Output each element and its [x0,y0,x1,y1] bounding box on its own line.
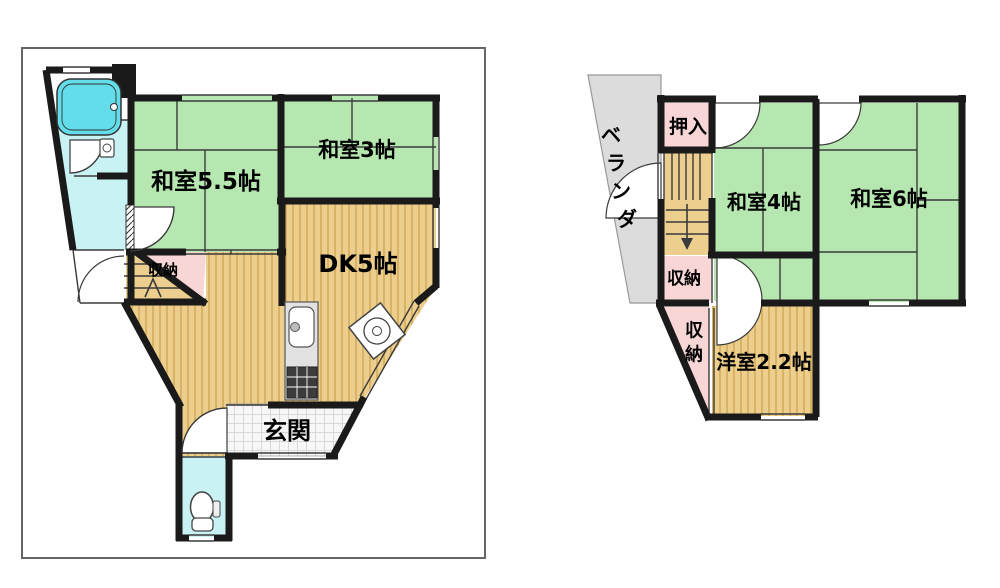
label-veranda-char-3: ン [611,179,631,203]
label-veranda-char-4: ダ [617,207,637,231]
label-genkan: 玄関 [263,417,311,445]
washbasin-icon [100,139,114,157]
label-oshiire: 押入 [669,115,707,138]
label-washitsu-4: 和室4帖 [727,190,801,214]
label-dk: DK5帖 [318,250,397,278]
second-floor-plan: 押入 和室4帖 和室6帖 収納 洋室2.2帖 収 納 ベ ラ ン ダ [588,75,966,420]
label-storage-lower-char-1: 収 [685,321,704,342]
label-storage-lower-char-2: 納 [685,344,703,366]
label-veranda-char-2: ラ [606,151,626,175]
label-washitsu-3: 和室3帖 [318,138,396,162]
label-storage-upper-2f: 収納 [667,268,701,289]
label-storage-1f: 収納 [148,261,178,279]
floor-plan-page: 和室5.5帖 和室3帖 DK5帖 収納 玄関 押入 和室4帖 [0,0,1000,588]
bathtub-icon [57,79,121,135]
hatched-wall-section [126,205,134,249]
label-washitsu-5-5: 和室5.5帖 [151,168,261,195]
stove-icon [287,367,317,398]
label-washitsu-6: 和室6帖 [850,187,928,211]
label-yoshitsu: 洋室2.2帖 [716,350,811,374]
first-floor-plan: 和室5.5帖 和室3帖 DK5帖 収納 玄関 [22,48,485,558]
floor-plan-canvas: 和室5.5帖 和室3帖 DK5帖 収納 玄関 押入 和室4帖 [0,0,1000,588]
label-veranda-char-1: ベ [601,123,621,147]
side-porch-floor [73,250,124,303]
